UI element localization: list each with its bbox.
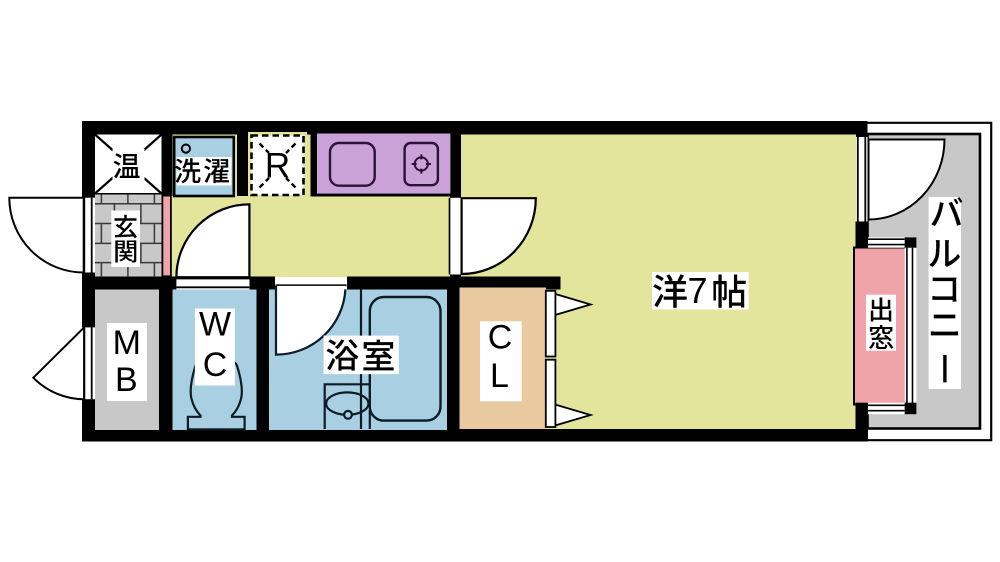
svg-text:7: 7 <box>687 270 707 311</box>
svg-text:C: C <box>488 319 513 357</box>
svg-text:R: R <box>265 147 290 186</box>
svg-text:M: M <box>113 324 141 362</box>
svg-text:L: L <box>490 357 509 395</box>
svg-text:W: W <box>199 306 231 344</box>
svg-text:B: B <box>115 361 138 399</box>
svg-text:C: C <box>203 346 228 384</box>
